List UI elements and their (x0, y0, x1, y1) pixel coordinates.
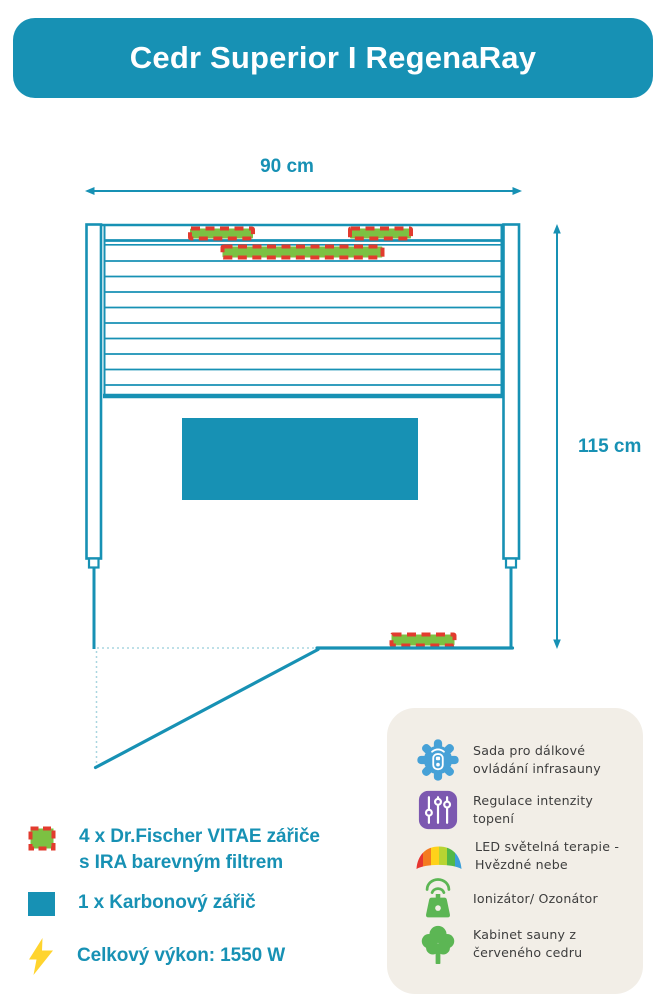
intensity-sliders-icon (415, 790, 461, 830)
vitae-heater-top-left (190, 229, 253, 239)
right-post-foot (506, 559, 516, 568)
feature-led-therapy: LED světelná terapie - Hvězdné nebe (415, 834, 625, 878)
cedar-tree-icon (415, 922, 461, 966)
vitae-heater-swatch (28, 826, 56, 851)
feature-remote-control: Sada pro dálkové ovládání infrasauny (415, 734, 625, 786)
left-post (87, 225, 102, 559)
legend-label-carbon: 1 x Karbonový zářič (78, 890, 256, 916)
vitae-heater-upper (223, 247, 383, 258)
feature-label-led: LED světelná terapie - Hvězdné nebe (475, 838, 625, 874)
lightning-icon (28, 938, 54, 975)
feature-label-ionizer: Ionizátor/ Ozonátor (473, 890, 598, 908)
right-post (504, 225, 520, 559)
infographic-page: Cedr Superior I RegenaRay 90 cm 115 cm (0, 0, 666, 1000)
feature-label-intensity: Regulace intenzity topení (473, 792, 625, 828)
floor-diagonal (96, 650, 319, 768)
vitae-heater-bottom (392, 635, 455, 646)
height-arrow (553, 224, 561, 649)
feature-intensity-regulation: Regulace intenzity topení (415, 786, 625, 834)
ionizer-icon (415, 878, 461, 920)
feature-label-remote: Sada pro dálkové ovládání infrasauny (473, 742, 625, 778)
legend-row-vitae: 4 x Dr.Fischer VITAE zářiče s IRA barevn… (28, 824, 328, 876)
legend-label-power: Celkový výkon: 1550 W (77, 943, 285, 969)
width-dimension-label: 90 cm (260, 156, 314, 177)
left-post-foot (89, 559, 99, 568)
legend-row-carbon: 1 x Karbonový zářič (28, 890, 328, 916)
legend-row-power: Celkový výkon: 1550 W (28, 936, 328, 975)
legend-label-vitae: 4 x Dr.Fischer VITAE zářiče s IRA barevn… (79, 824, 328, 876)
carbon-heater-swatch (28, 892, 55, 916)
feature-label-cedar: Kabinet sauny z červeného cedru (473, 926, 625, 962)
height-dimension-label: 115 cm (578, 436, 641, 457)
features-panel: Sada pro dálkové ovládání infrasauny (387, 708, 643, 994)
feature-cedar-cabinet: Kabinet sauny z červeného cedru (415, 920, 625, 968)
width-arrow (85, 187, 522, 195)
feature-ionizer: Ionizátor/ Ozonátor (415, 878, 625, 920)
carbon-heater (182, 418, 418, 500)
vitae-heater-top-right (350, 229, 411, 239)
legend: 4 x Dr.Fischer VITAE zářiče s IRA barevn… (28, 824, 328, 975)
remote-control-gear-icon (415, 737, 461, 783)
rainbow-led-icon (415, 843, 463, 870)
